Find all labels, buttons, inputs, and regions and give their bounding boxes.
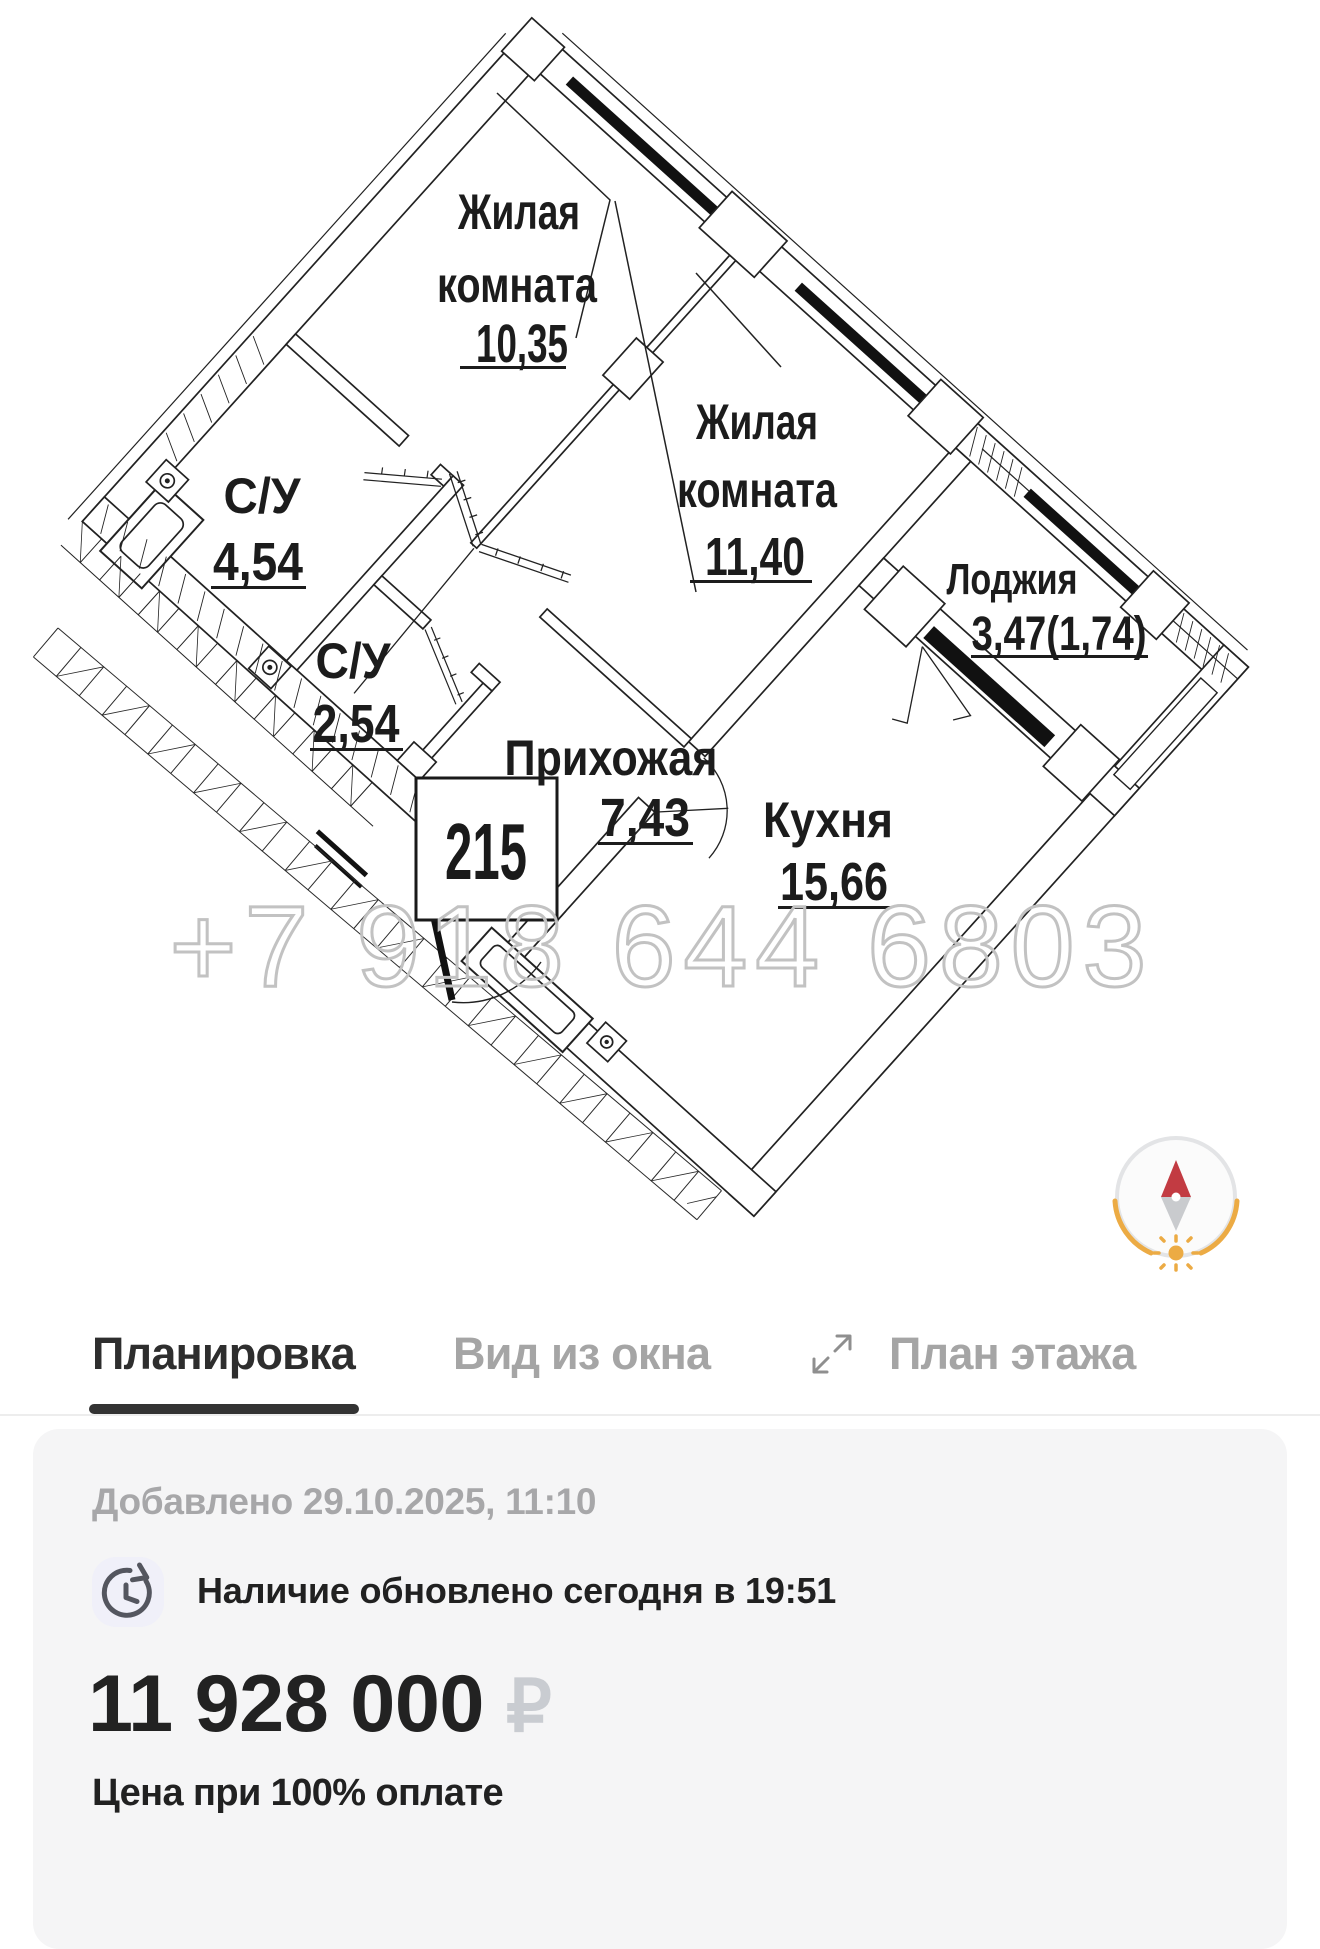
svg-text:3,47(1,74): 3,47(1,74) bbox=[972, 608, 1147, 661]
svg-text:2,54: 2,54 bbox=[313, 694, 400, 754]
svg-text:комната: комната bbox=[677, 462, 838, 518]
svg-text:+7 918 644 6803: +7 918 644 6803 bbox=[170, 883, 1147, 1011]
svg-text:10,35: 10,35 bbox=[476, 314, 568, 374]
svg-text:11,40: 11,40 bbox=[705, 527, 805, 587]
svg-text:Лоджия: Лоджия bbox=[947, 555, 1078, 604]
svg-text:4,54: 4,54 bbox=[213, 532, 303, 592]
svg-text:7,43: 7,43 bbox=[600, 788, 690, 848]
svg-text:комната: комната bbox=[437, 257, 598, 313]
svg-text:Жилая: Жилая bbox=[695, 394, 818, 450]
svg-text:С/У: С/У bbox=[224, 468, 302, 524]
svg-text:Жилая: Жилая bbox=[457, 184, 580, 240]
svg-text:С/У: С/У bbox=[316, 633, 392, 689]
svg-text:Прихожая: Прихожая bbox=[505, 730, 718, 786]
svg-text:Кухня: Кухня bbox=[763, 792, 893, 848]
